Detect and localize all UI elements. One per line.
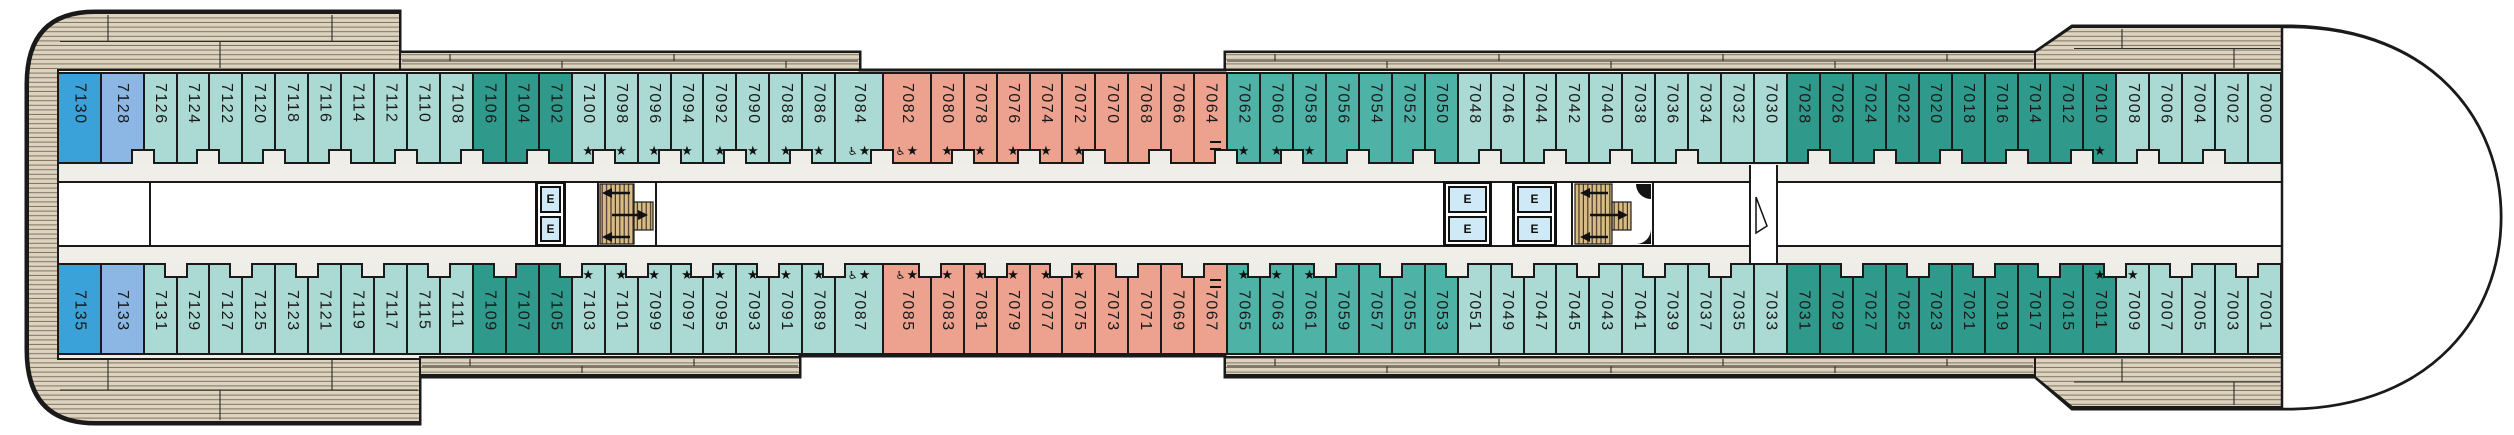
door-alcove: [1445, 263, 1469, 278]
star-icon: ★: [941, 268, 953, 283]
elevator-icon: E: [1517, 186, 1552, 213]
cabin-number: 7096: [646, 83, 662, 125]
door-alcove: [1675, 149, 1699, 164]
door-alcove: [2136, 149, 2160, 164]
cabin-number: 7047: [1532, 290, 1548, 332]
cabin-number: 7126: [152, 83, 168, 125]
cabin-number: 7072: [1071, 83, 1087, 125]
door-alcove: [196, 149, 220, 164]
door-alcove: [1478, 149, 1502, 164]
cabin-number: 7123: [284, 290, 300, 332]
door-alcove: [1115, 263, 1139, 278]
cabin-number: 7036: [1664, 83, 1680, 125]
star-icon: ★: [2127, 268, 2139, 283]
wheelchair-icon: ♿: [896, 269, 906, 282]
cabin-number: 7127: [218, 290, 234, 332]
deck-plan: 7130712871267124712271207118711671147112…: [0, 0, 2514, 435]
cabin-number: 7035: [1730, 290, 1746, 332]
cabin-number: 7050: [1433, 83, 1449, 125]
cabin-7030[interactable]: 7030: [1753, 72, 1788, 164]
cabin-number: 7022: [1894, 83, 1910, 125]
star-icon: ★: [582, 268, 594, 283]
cabin-number: 7043: [1598, 290, 1614, 332]
cabin-number: 7070: [1104, 83, 1120, 125]
cabin-number: 7012: [2059, 83, 2075, 125]
star-icon: ★: [1040, 144, 1052, 159]
cabin-number: 7038: [1631, 83, 1647, 125]
cabin-number: 7037: [1697, 290, 1713, 332]
cabin-number: 7061: [1301, 290, 1317, 332]
door-alcove: [1346, 149, 1370, 164]
star-icon: ★: [813, 144, 825, 159]
cabin-number: 7008: [2125, 83, 2141, 125]
cabin-number: 7111: [448, 290, 464, 329]
cabin-number: 7107: [514, 290, 530, 332]
door-alcove: [1807, 149, 1831, 164]
cabin-number: 7108: [448, 83, 464, 125]
door-alcove: [1642, 263, 1666, 278]
cabin-number: 7024: [1861, 83, 1877, 125]
star-icon: ★: [1271, 268, 1283, 283]
door-alcove: [723, 149, 747, 164]
cabin-number: 7116: [317, 83, 333, 123]
cabin-number: 7133: [114, 290, 130, 332]
cabin-number: 7092: [712, 83, 728, 125]
cabin-number: 7054: [1367, 83, 1383, 125]
cabin-number: 7119: [350, 290, 366, 330]
cabin-number: 7083: [939, 290, 955, 332]
cabin-number: 7002: [2224, 83, 2240, 125]
door-alcove: [526, 149, 550, 164]
cabin-number: 7051: [1466, 290, 1482, 332]
cabin-number: 7128: [114, 83, 130, 125]
cabin-number: 7075: [1071, 290, 1087, 332]
elevator-icon: E: [1448, 216, 1487, 243]
star-icon: ★: [1304, 144, 1316, 159]
cabin-number: 7120: [251, 83, 267, 125]
cabin-number: 7122: [218, 83, 234, 125]
cabin-number: 7106: [481, 83, 497, 125]
star-icon: ★: [1238, 144, 1250, 159]
cabin-number: 7066: [1170, 83, 1186, 125]
cabin-number: 7062: [1236, 83, 1252, 125]
door-alcove: [427, 263, 451, 278]
midship-staircase-icon: [1572, 182, 1653, 246]
cabin-number: 7114: [350, 83, 366, 123]
cabin-number: 7017: [2026, 290, 2042, 332]
cabin-number: 7004: [2191, 83, 2207, 125]
cabin-number: 7041: [1631, 290, 1647, 332]
cabin-number: 7109: [481, 290, 497, 332]
door-alcove: [1576, 263, 1600, 278]
door-alcove: [1049, 263, 1073, 278]
cabin-7135[interactable]: 7135: [57, 263, 102, 355]
cabin-number: 7104: [514, 83, 530, 125]
cabin-number: 7121: [317, 290, 333, 332]
cabin-number: 7082: [899, 83, 915, 125]
cabin-number: 7084: [851, 83, 867, 125]
cabin-number: 7131: [152, 290, 168, 332]
star-icon: ★: [747, 144, 759, 159]
door-alcove: [2005, 149, 2029, 164]
cabin-number: 7076: [1005, 83, 1021, 125]
cabin-number: 7028: [1795, 83, 1811, 125]
cabin-number: 7014: [2026, 83, 2042, 125]
bow-area: [2282, 27, 2501, 409]
watertight-door-icon: [1210, 141, 1221, 150]
cabin-number: 7067: [1203, 290, 1219, 332]
door-alcove: [460, 149, 484, 164]
cabin-number: 7001: [2257, 290, 2273, 332]
wheelchair-icon: ♿: [848, 269, 858, 282]
door-alcove: [229, 263, 253, 278]
cabin-number: 7026: [1828, 83, 1844, 125]
door-alcove: [2103, 263, 2127, 278]
cabin-number: 7040: [1598, 83, 1614, 125]
cabin-number: 7025: [1894, 290, 1910, 332]
door-alcove: [1906, 263, 1930, 278]
cabin-number: 7010: [2092, 83, 2108, 125]
door-alcove: [870, 149, 894, 164]
cabin-number: 7055: [1400, 290, 1416, 332]
cabin-number: 7088: [778, 83, 794, 125]
door-alcove: [295, 263, 319, 278]
door-alcove: [625, 263, 649, 278]
star-icon: ★: [1073, 268, 1085, 283]
midship-elevator-bank-2: E E: [1512, 181, 1557, 247]
cabin-number: 7011: [2092, 290, 2108, 330]
cabin-number: 7045: [1565, 290, 1581, 332]
cabin-number: 7105: [547, 290, 563, 332]
aft-elevator-bank: E E: [535, 181, 566, 247]
door-alcove: [493, 263, 517, 278]
cabin-number: 7112: [383, 83, 399, 123]
door-alcove: [328, 149, 352, 164]
door-alcove: [2202, 149, 2226, 164]
cabin-number: 7125: [251, 290, 267, 332]
cabin-number: 7039: [1664, 290, 1680, 332]
door-alcove: [1181, 263, 1205, 278]
cabin-number: 7031: [1795, 290, 1811, 332]
cabin-number: 7078: [972, 83, 988, 125]
door-alcove: [1840, 263, 1864, 278]
cabin-number: 7023: [1927, 290, 1943, 332]
door-alcove: [756, 263, 780, 278]
door-alcove: [2037, 263, 2061, 278]
door-alcove: [1708, 263, 1732, 278]
aft-staircase-icon: [598, 182, 656, 246]
door-alcove: [1313, 263, 1337, 278]
door-alcove: [918, 263, 942, 278]
cabin-number: 7034: [1697, 83, 1713, 125]
cabin-number: 7117: [383, 290, 399, 330]
door-alcove: [1939, 149, 1963, 164]
door-alcove: [951, 149, 975, 164]
cabin-number: 7090: [745, 83, 761, 125]
cabin-number: 7115: [416, 290, 432, 330]
cabin-number: 7063: [1269, 290, 1285, 332]
cabin-number: 7007: [2158, 290, 2174, 332]
door-alcove: [1082, 149, 1106, 164]
star-icon: ★: [1007, 268, 1019, 283]
cabin-number: 7065: [1236, 290, 1252, 332]
cabin-number: 7118: [284, 83, 300, 123]
cabin-number: 7077: [1038, 290, 1054, 332]
cabin-number: 7100: [580, 83, 596, 125]
cabin-number: 7049: [1499, 290, 1515, 332]
door-alcove: [1412, 149, 1436, 164]
star-icon: ★: [780, 268, 792, 283]
elevator-icon: E: [1448, 186, 1487, 213]
door-alcove: [559, 263, 583, 278]
cabin-number: 7021: [1960, 290, 1976, 332]
door-alcove: [1511, 263, 1535, 278]
cabin-number: 7071: [1137, 290, 1153, 332]
star-icon: ★: [859, 268, 871, 283]
cross-passage: [1750, 165, 1777, 263]
cabin-number: 7130: [71, 83, 87, 125]
cabin-number: 7044: [1532, 83, 1548, 125]
cabin-number: 7098: [613, 83, 629, 125]
wheelchair-icon: ♿: [896, 145, 906, 158]
center-block: [58, 182, 2282, 246]
cabin-number: 7015: [2059, 290, 2075, 332]
door-alcove: [262, 149, 286, 164]
door-alcove: [1017, 149, 1041, 164]
watertight-door-icon: [1210, 279, 1221, 288]
cabin-number: 7052: [1400, 83, 1416, 125]
door-alcove: [1972, 263, 1996, 278]
door-alcove: [592, 149, 616, 164]
door-alcove: [164, 263, 188, 278]
cabin-number: 7027: [1861, 290, 1877, 332]
cabin-number: 7102: [547, 83, 563, 125]
cabin-number: 7080: [939, 83, 955, 125]
star-icon: ★: [714, 268, 726, 283]
door-alcove: [131, 149, 155, 164]
cabin-number: 7006: [2158, 83, 2174, 125]
cabin-number: 7085: [899, 290, 915, 332]
cabin-number: 7074: [1038, 83, 1054, 125]
cabin-number: 7020: [1927, 83, 1943, 125]
door-alcove: [789, 149, 813, 164]
door-alcove: [822, 263, 846, 278]
cabin-7130[interactable]: 7130: [57, 72, 102, 164]
cabin-7031[interactable]: 7031: [1786, 263, 1821, 355]
cabin-number: 7030: [1763, 83, 1779, 125]
cabin-7133[interactable]: 7133: [100, 263, 145, 355]
cabin-number: 7033: [1763, 290, 1779, 332]
cabin-number: 7056: [1334, 83, 1350, 125]
cabin-7032[interactable]: 7032: [1720, 72, 1755, 164]
cabin-number: 7087: [851, 290, 867, 332]
midship-elevator-bank-1: E E: [1443, 181, 1492, 247]
elevator-icon: E: [1517, 216, 1552, 243]
door-alcove: [361, 263, 385, 278]
star-icon: ★: [906, 144, 918, 159]
door-alcove: [1543, 149, 1567, 164]
door-alcove: [1148, 149, 1172, 164]
cabin-number: 7086: [811, 83, 827, 125]
door-alcove: [1214, 149, 1238, 164]
cabin-number: 7068: [1137, 83, 1153, 125]
door-alcove: [1379, 263, 1403, 278]
cabin-number: 7048: [1466, 83, 1482, 125]
cabin-7033[interactable]: 7033: [1753, 263, 1788, 355]
cabin-number: 7053: [1433, 290, 1449, 332]
door-alcove: [2070, 149, 2094, 164]
star-icon: ★: [859, 144, 871, 159]
star-icon: ★: [681, 144, 693, 159]
cabin-number: 7046: [1499, 83, 1515, 125]
cabin-number: 7110: [416, 83, 432, 123]
cabin-number: 7018: [1960, 83, 1976, 125]
cabin-number: 7103: [580, 290, 596, 332]
door-alcove: [1280, 149, 1304, 164]
cabin-number: 7135: [71, 290, 87, 332]
door-alcove: [394, 149, 418, 164]
door-alcove: [2169, 263, 2193, 278]
cabin-number: 7124: [185, 83, 201, 125]
cabin-number: 7005: [2191, 290, 2207, 332]
elevator-icon: E: [540, 186, 561, 213]
cabin-7000[interactable]: 7000: [2247, 72, 2282, 164]
door-alcove: [658, 149, 682, 164]
star-icon: ★: [2094, 144, 2106, 159]
cabin-number: 7058: [1301, 83, 1317, 125]
cabin-number: 7029: [1828, 290, 1844, 332]
cabin-number: 7000: [2257, 83, 2273, 125]
door-alcove: [2235, 263, 2259, 278]
cabin-number: 7060: [1269, 83, 1285, 125]
cabin-number: 7042: [1565, 83, 1581, 125]
cabin-number: 7073: [1104, 290, 1120, 332]
door-alcove: [1873, 149, 1897, 164]
cabin-number: 7019: [1993, 290, 2009, 332]
cabin-number: 7101: [613, 290, 629, 332]
cabin-number: 7091: [778, 290, 794, 332]
cabin-number: 7079: [1005, 290, 1021, 332]
door-alcove: [1609, 149, 1633, 164]
cabin-number: 7097: [679, 290, 695, 332]
cabin-number: 7129: [185, 290, 201, 332]
elevator-icon: E: [540, 216, 561, 243]
cabin-number: 7081: [972, 290, 988, 332]
ship-hull-drawing: [0, 0, 2514, 435]
wheelchair-icon: ♿: [848, 145, 858, 158]
cabin-number: 7089: [811, 290, 827, 332]
star-icon: ★: [906, 268, 918, 283]
cabin-number: 7095: [712, 290, 728, 332]
cabin-number: 7099: [646, 290, 662, 332]
star-icon: ★: [615, 144, 627, 159]
cabin-number: 7059: [1334, 290, 1350, 332]
cabin-number: 7003: [2224, 290, 2240, 332]
door-alcove: [984, 263, 1008, 278]
door-alcove: [690, 263, 714, 278]
cabin-number: 7094: [679, 83, 695, 125]
cabin-number: 7032: [1730, 83, 1746, 125]
cabin-number: 7016: [1993, 83, 2009, 125]
cabin-number: 7009: [2125, 290, 2141, 332]
cabin-number: 7057: [1367, 290, 1383, 332]
door-alcove: [1247, 263, 1271, 278]
cabin-number: 7093: [745, 290, 761, 332]
cabin-number: 7064: [1203, 83, 1219, 125]
star-icon: ★: [974, 144, 986, 159]
star-icon: ★: [648, 268, 660, 283]
cabin-number: 7069: [1170, 290, 1186, 332]
